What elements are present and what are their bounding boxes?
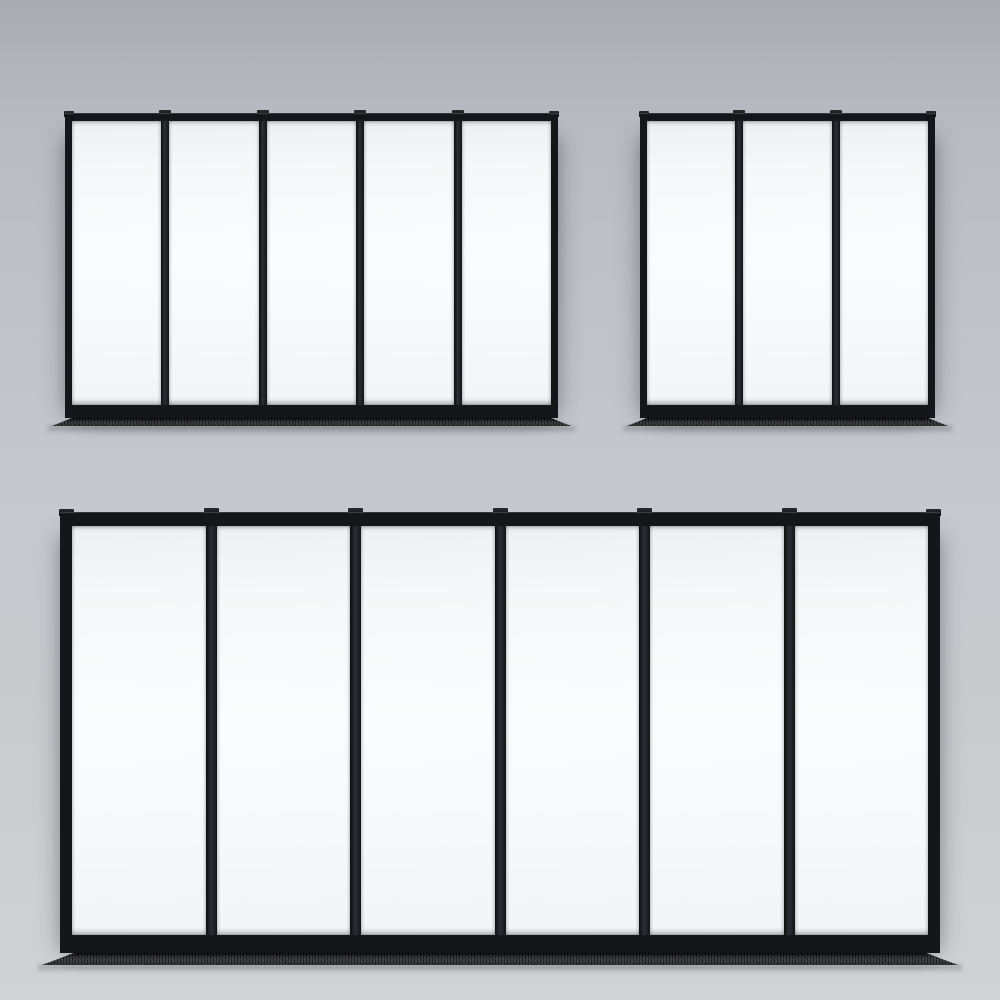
mullion — [350, 526, 361, 935]
mullion-cap — [354, 110, 366, 117]
stile-cap-left — [59, 509, 74, 516]
render-scene — [0, 0, 1000, 1000]
glass-pane — [840, 121, 928, 405]
mullion — [495, 526, 506, 935]
glass-pane — [650, 526, 784, 935]
stile-cap-left — [64, 111, 74, 117]
glass-pane — [72, 526, 206, 935]
mullion-cap — [204, 508, 219, 516]
mullion-cap — [830, 110, 842, 117]
stile-cap-right — [926, 111, 936, 117]
mullion-cap — [452, 110, 464, 117]
mullion-cap — [159, 110, 171, 117]
mullion — [639, 526, 650, 935]
window-top-left — [65, 113, 558, 418]
floor-track — [627, 418, 948, 426]
glass-pane — [506, 526, 640, 935]
glazing-row — [72, 121, 551, 405]
mullion — [735, 121, 743, 405]
mullion-cap — [733, 110, 745, 117]
stile-cap-right — [549, 111, 559, 117]
glazing-row — [72, 526, 928, 935]
glass-pane — [743, 121, 831, 405]
glass-pane — [364, 121, 453, 405]
floor-track — [42, 953, 958, 965]
glass-pane — [169, 121, 258, 405]
glass-pane — [647, 121, 735, 405]
mullion-cap — [257, 110, 269, 117]
glass-pane — [361, 526, 495, 935]
window-bottom — [60, 512, 940, 953]
mullion — [832, 121, 840, 405]
window-top-right — [640, 113, 935, 418]
mullion — [259, 121, 267, 405]
mullion-cap — [493, 508, 508, 516]
glass-pane — [795, 526, 929, 935]
mullion-cap — [637, 508, 652, 516]
stile-cap-right — [926, 509, 941, 516]
stile-cap-left — [639, 111, 649, 117]
glass-pane — [462, 121, 551, 405]
mullion-cap — [782, 508, 797, 516]
floor-shadow — [48, 426, 575, 433]
mullion-cap — [348, 508, 363, 516]
floor-track — [52, 418, 571, 426]
mullion — [206, 526, 217, 935]
floor-shadow — [623, 426, 952, 433]
glass-pane — [72, 121, 161, 405]
glass-pane — [267, 121, 356, 405]
glass-pane — [217, 526, 351, 935]
mullion — [454, 121, 462, 405]
mullion — [356, 121, 364, 405]
glazing-row — [647, 121, 928, 405]
floor-shadow — [38, 965, 962, 972]
mullion — [161, 121, 169, 405]
mullion — [784, 526, 795, 935]
